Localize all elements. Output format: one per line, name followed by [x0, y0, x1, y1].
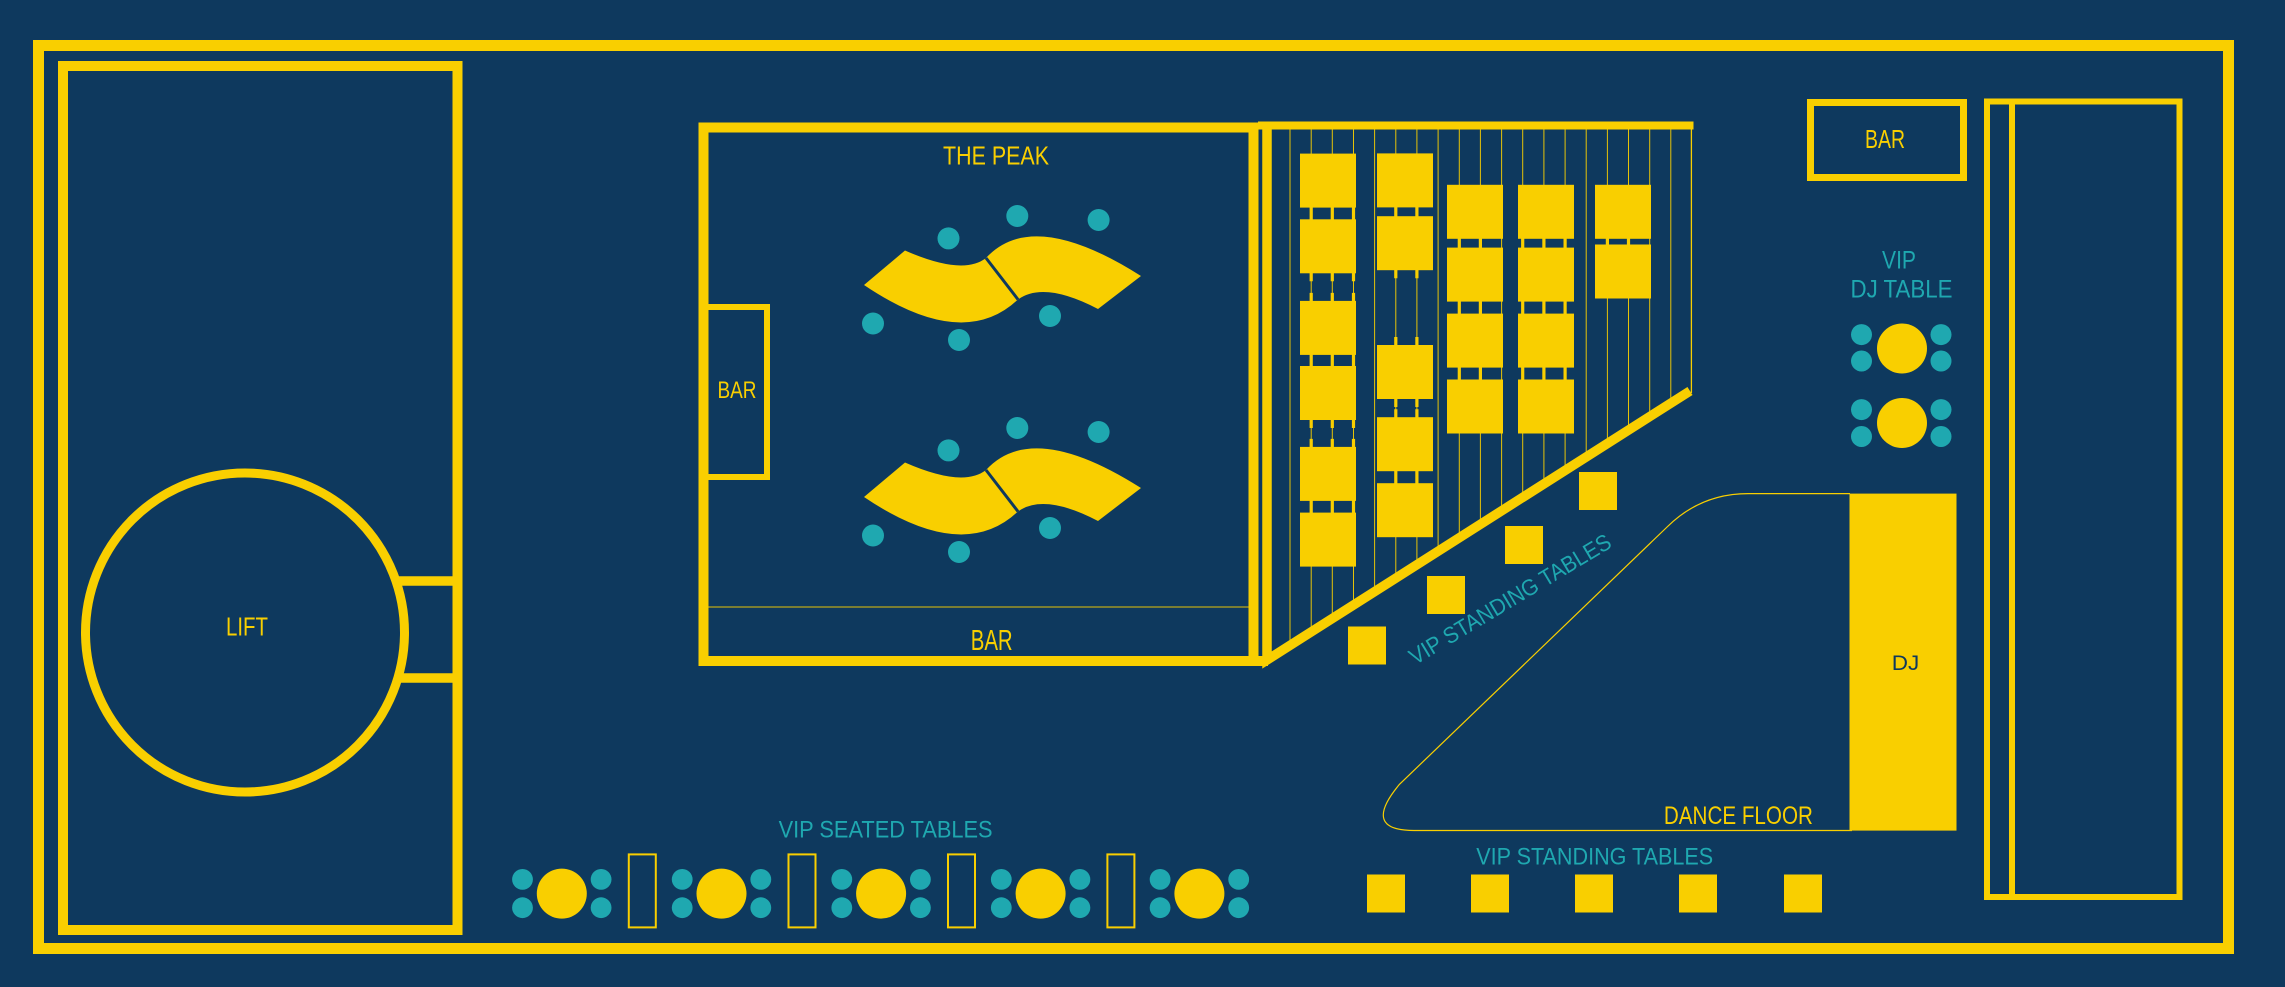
- svg-text:DJ TABLE: DJ TABLE: [1851, 275, 1953, 303]
- svg-text:VIP STANDING TABLES: VIP STANDING TABLES: [1476, 844, 1713, 871]
- svg-text:THE PEAK: THE PEAK: [943, 141, 1050, 171]
- svg-text:VIP: VIP: [1882, 246, 1916, 274]
- svg-text:LIFT: LIFT: [226, 612, 268, 642]
- svg-text:BAR: BAR: [971, 625, 1013, 657]
- svg-text:DANCE FLOOR: DANCE FLOOR: [1664, 802, 1813, 830]
- svg-text:VIP SEATED TABLES: VIP SEATED TABLES: [779, 817, 993, 844]
- svg-text:BAR: BAR: [718, 377, 757, 404]
- svg-text:BAR: BAR: [1865, 124, 1905, 154]
- svg-text:DJ: DJ: [1892, 652, 1920, 675]
